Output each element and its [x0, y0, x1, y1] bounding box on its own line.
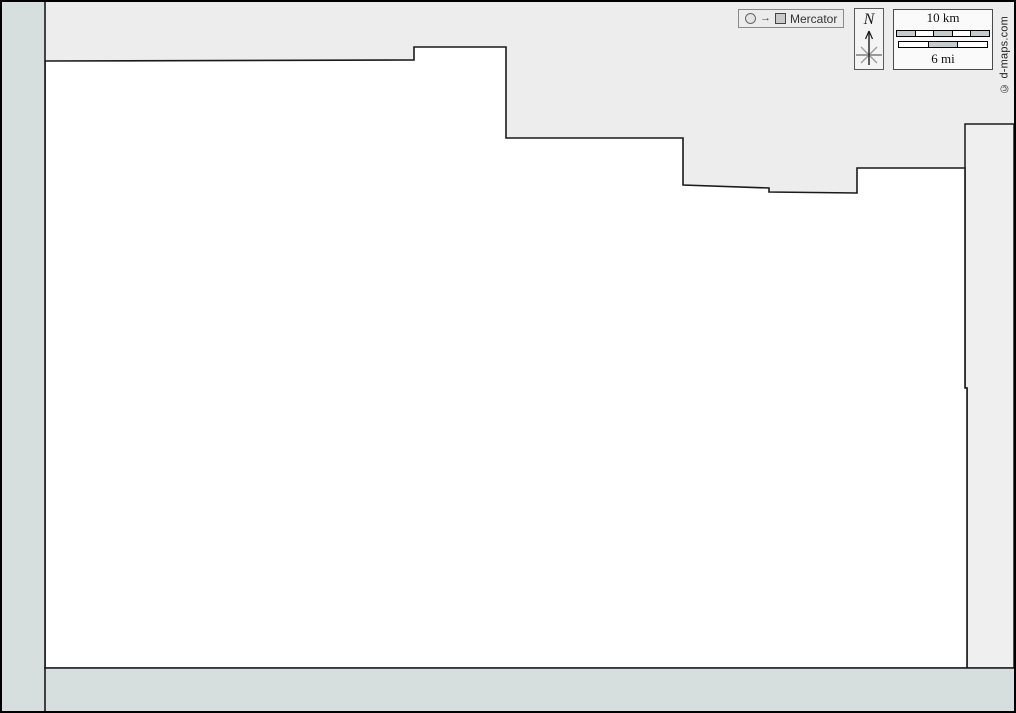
copyright-label: © d-maps.com — [997, 8, 1012, 94]
map-canvas: → Mercator N 10 km — [0, 0, 1016, 713]
bottom-margin-strip — [2, 668, 1014, 711]
left-margin-strip — [2, 2, 45, 711]
scale-segment — [952, 31, 971, 36]
compass-star-icon — [854, 28, 884, 68]
neighbor-region — [965, 124, 1014, 668]
scale-segment — [970, 31, 989, 36]
scale-km-bar — [896, 30, 990, 37]
scale-segment — [928, 42, 958, 47]
projection-label: Mercator — [790, 12, 837, 26]
scale-segment — [899, 42, 928, 47]
scale-segment — [915, 31, 934, 36]
scale-segment — [897, 31, 915, 36]
globe-circle-icon — [745, 13, 756, 24]
compass-box: N — [854, 8, 884, 70]
scale-mi-bar — [898, 41, 988, 48]
north-label: N — [864, 12, 875, 28]
scale-bar: 10 km 6 mi — [893, 9, 993, 70]
projected-square-icon — [775, 13, 786, 24]
arrow-right-icon: → — [760, 13, 771, 24]
scale-km-label: 10 km — [927, 11, 960, 26]
projection-badge: → Mercator — [738, 9, 844, 28]
scale-mi-label: 6 mi — [931, 52, 954, 67]
scale-segment — [933, 31, 952, 36]
map-drawing — [0, 0, 1016, 713]
scale-segment — [957, 42, 987, 47]
